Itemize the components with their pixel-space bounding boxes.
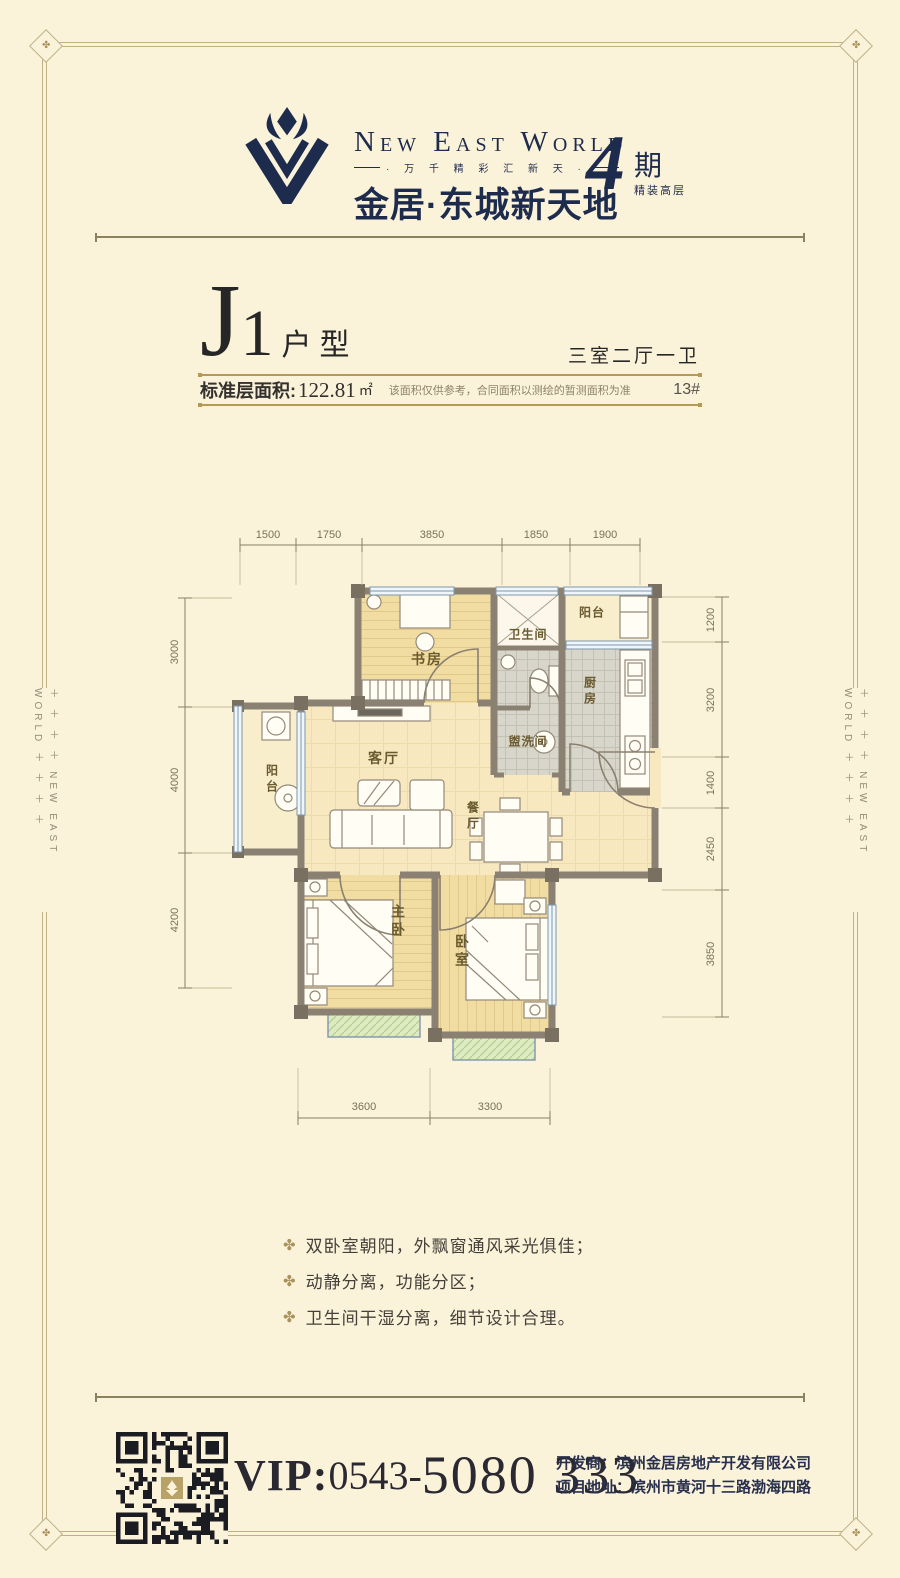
- room-label-wash: 盥洗间: [508, 733, 547, 750]
- clover-icon: ✤: [852, 41, 860, 51]
- developer-line: 开发商：滨州金居房地产开发有限公司: [556, 1452, 811, 1476]
- dim-right-2: 3200: [705, 688, 717, 712]
- qr-code: [116, 1432, 228, 1544]
- corner-ornament: ✤: [29, 1517, 63, 1551]
- room-label-master: 主卧: [388, 904, 408, 940]
- area-value: 122.81: [298, 378, 356, 403]
- dim-top-4: 1850: [524, 529, 548, 541]
- phase-unit: 期: [634, 144, 664, 184]
- dim-right-5: 3850: [705, 942, 717, 966]
- brand-name-cn: 金居·东城新天地: [354, 177, 594, 228]
- brand-logo-icon: [238, 104, 336, 204]
- clover-bullet-icon: ✤: [283, 1308, 297, 1326]
- corner-ornament: ✤: [839, 29, 873, 63]
- clover-icon: ✤: [42, 1529, 50, 1539]
- dim-bottom-2: 3300: [478, 1101, 502, 1113]
- side-vertical-text-right: ＋ ＋ ＋ ＋ NEW EAST WORLD ＋ ＋ ＋ ＋: [846, 688, 864, 912]
- feature-text: 动静分离，功能分区；: [306, 1268, 486, 1293]
- unit-code-digit: 1: [240, 296, 273, 372]
- dim-top-5: 1900: [593, 529, 617, 541]
- dim-bottom-1: 3600: [352, 1101, 376, 1113]
- brand-tagline-text: · 万 千 精 彩 汇 新 天 ·: [386, 160, 587, 175]
- dim-right-4: 2450: [705, 837, 717, 861]
- vip-area-code: 0543-: [328, 1452, 421, 1499]
- unit-code-letter: J: [200, 274, 240, 368]
- feature-list: ✤ 双卧室朝阳，外飘窗通风采光俱佳； ✤ 动静分离，功能分区； ✤ 卫生间干湿分…: [283, 1232, 594, 1340]
- feature-item: ✤ 卫生间干湿分离，细节设计合理。: [283, 1304, 594, 1329]
- unit-title-block: J 1 户型 三室二厅一卫: [200, 282, 700, 372]
- clover-bullet-icon: ✤: [283, 1236, 297, 1254]
- unit-info-row: 标准层面积: 122.81 ㎡ 该面积仅供参考，合同面积以测绘的暂测面积为准 1…: [200, 378, 700, 402]
- poster-page: ✤ ✤ ✤ ✤ ＋ ＋ ＋ ＋ NEW EAST WORLD ＋ ＋ ＋ ＋ ＋…: [0, 0, 900, 1578]
- brand-text-block: New East World · 万 千 精 彩 汇 新 天 · 金居·东城新天…: [354, 126, 594, 228]
- feature-item: ✤ 动静分离，功能分区；: [283, 1268, 594, 1293]
- gold-rule: [200, 404, 700, 406]
- dim-left-1: 3000: [169, 640, 181, 664]
- room-label-balcony-top: 阳台: [579, 604, 605, 621]
- area-unit: ㎡: [359, 380, 373, 400]
- area-label: 标准层面积:: [200, 377, 296, 403]
- room-label-study: 书房: [411, 649, 443, 669]
- entry-opening: [650, 748, 661, 808]
- area-note: 该面积仅供参考，合同面积以测绘的暂测面积为准: [389, 382, 631, 398]
- phase-number: 4: [586, 124, 625, 202]
- side-vertical-text-left: ＋ ＋ ＋ ＋ NEW EAST WORLD ＋ ＋ ＋ ＋: [36, 688, 54, 912]
- dim-top-1: 1500: [256, 529, 280, 541]
- corner-ornament: ✤: [29, 29, 63, 63]
- unit-layout: 三室二厅一卫: [568, 341, 700, 368]
- room-label-bedroom: 卧室: [452, 934, 472, 970]
- room-label-bath: 卫生间: [508, 626, 547, 643]
- dim-top-2: 1750: [317, 529, 341, 541]
- clover-icon: ✤: [852, 1529, 860, 1539]
- corner-ornament: ✤: [839, 1517, 873, 1551]
- clover-bullet-icon: ✤: [283, 1272, 297, 1290]
- dim-right-3: 1400: [705, 771, 717, 795]
- feature-item: ✤ 双卧室朝阳，外飘窗通风采光俱佳；: [283, 1232, 594, 1257]
- brand-tagline: · 万 千 精 彩 汇 新 天 ·: [354, 160, 594, 175]
- divider: [95, 1396, 805, 1398]
- room-label-balcony-left: 阳台: [264, 764, 281, 796]
- vip-label: VIP:: [234, 1450, 328, 1501]
- address-line: 项目地址：滨州市黄河十三路渤海四路: [556, 1476, 811, 1500]
- room-label-living: 客厅: [368, 748, 400, 768]
- gold-rule: [200, 374, 700, 376]
- unit-type-label: 户型: [281, 320, 357, 364]
- feature-text: 双卧室朝阳，外飘窗通风采光俱佳；: [306, 1232, 594, 1257]
- phase-block: 4 期 精装高层: [586, 124, 625, 202]
- dim-left-2: 4000: [169, 768, 181, 792]
- dim-left-3: 4200: [169, 908, 181, 932]
- feature-text: 卫生间干湿分离，细节设计合理。: [306, 1304, 576, 1329]
- developer-info: 开发商：滨州金居房地产开发有限公司 项目地址：滨州市黄河十三路渤海四路: [556, 1452, 811, 1500]
- dim-right-1: 1200: [705, 608, 717, 632]
- phase-subtitle: 精装高层: [634, 182, 686, 198]
- divider: [95, 236, 805, 238]
- building-number: 13#: [673, 381, 700, 399]
- clover-icon: ✤: [42, 41, 50, 51]
- dim-top-3: 3850: [420, 529, 444, 541]
- room-label-dining: 餐厅: [465, 801, 482, 833]
- brand-name-en: New East World: [354, 126, 594, 159]
- room-label-kitchen: 厨房: [582, 676, 599, 708]
